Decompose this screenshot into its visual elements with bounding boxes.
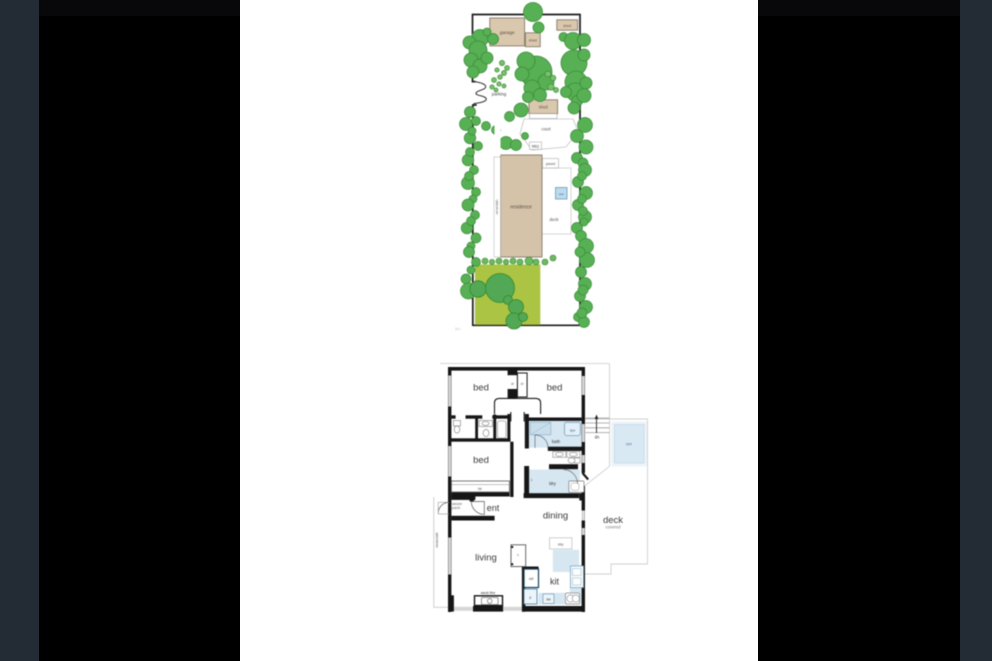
svg-text:BBQ: BBQ bbox=[532, 144, 540, 148]
svg-text:dw: dw bbox=[546, 598, 551, 602]
svg-text:residence: residence bbox=[510, 205, 532, 211]
svg-text:west fire: west fire bbox=[481, 590, 496, 595]
svg-text:p: p bbox=[530, 596, 532, 600]
svg-text:shed: shed bbox=[539, 105, 549, 110]
svg-text:dn: dn bbox=[595, 435, 600, 440]
svg-text:paved: paved bbox=[546, 162, 556, 166]
svg-text:court: court bbox=[541, 127, 551, 132]
svg-text:dining: dining bbox=[543, 511, 568, 522]
svg-text:garage: garage bbox=[500, 30, 515, 36]
svg-text:porch: porch bbox=[452, 506, 460, 510]
svg-text:living: living bbox=[475, 553, 497, 564]
svg-text:spa: spa bbox=[626, 442, 632, 446]
svg-text:ent: ent bbox=[487, 503, 500, 513]
svg-text:kit: kit bbox=[550, 577, 559, 587]
svg-text:sky: sky bbox=[558, 543, 564, 547]
svg-text:shed: shed bbox=[529, 39, 537, 43]
svg-text:covered: covered bbox=[606, 525, 622, 530]
svg-text:spa: spa bbox=[559, 192, 564, 196]
svg-text:verandah: verandah bbox=[435, 532, 439, 547]
svg-text:spa: spa bbox=[570, 429, 575, 433]
svg-text:ldry: ldry bbox=[549, 481, 557, 486]
svg-text:deck: deck bbox=[549, 217, 559, 222]
svg-text:shed: shed bbox=[563, 24, 571, 28]
svg-text:bed: bed bbox=[547, 383, 563, 394]
svg-text:verandah: verandah bbox=[495, 200, 499, 215]
svg-text:bed: bed bbox=[473, 455, 489, 466]
svg-text:bed: bed bbox=[473, 383, 489, 394]
svg-text:parking: parking bbox=[492, 92, 507, 97]
svg-text:bath: bath bbox=[552, 439, 561, 444]
svg-text:c: c bbox=[517, 553, 519, 557]
